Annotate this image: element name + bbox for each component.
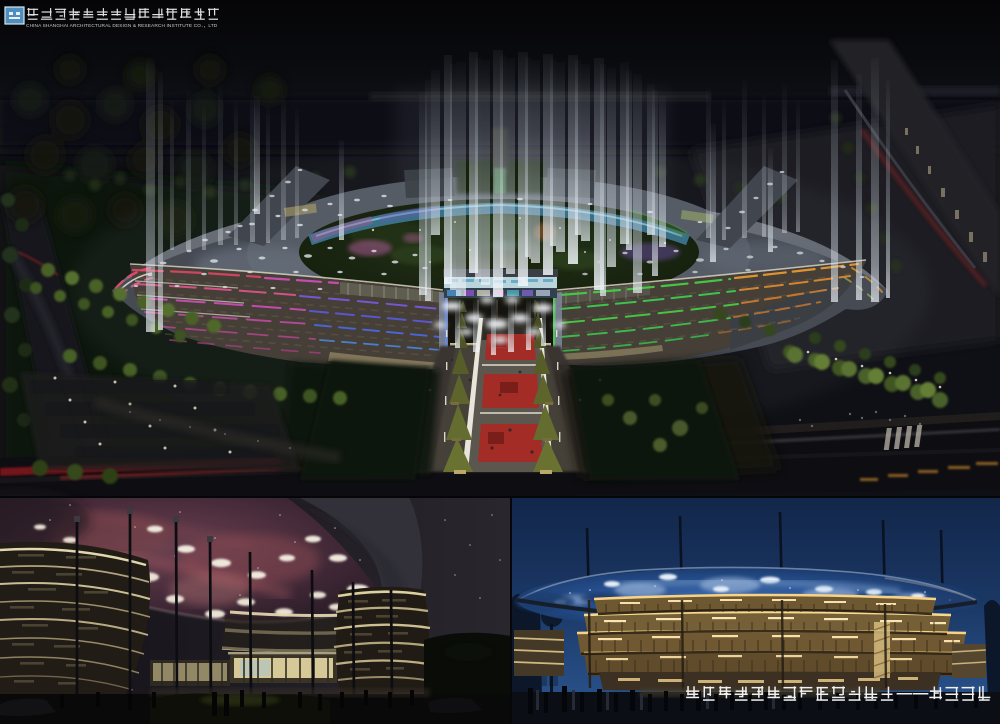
svg-text:CHINA SHANGHAI ARCHITECTURAL D: CHINA SHANGHAI ARCHITECTURAL DESIGN & RE… — [26, 23, 218, 29]
